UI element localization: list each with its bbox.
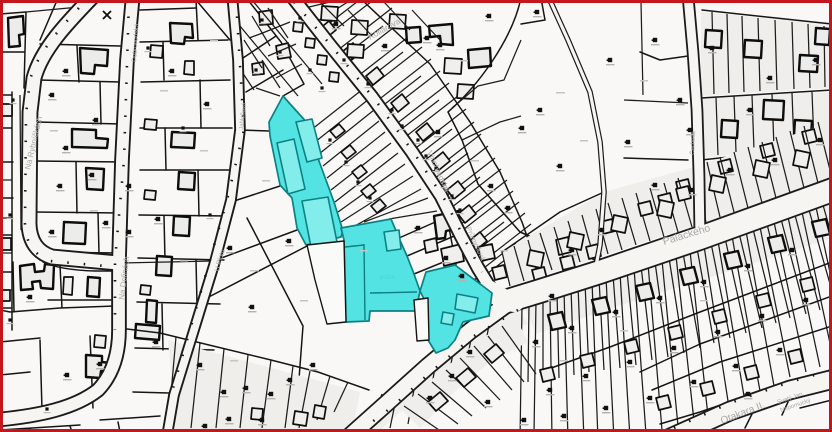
svg-text:Čechova: Čechova: [689, 130, 697, 155]
svg-text:prům: prům: [379, 273, 395, 281]
